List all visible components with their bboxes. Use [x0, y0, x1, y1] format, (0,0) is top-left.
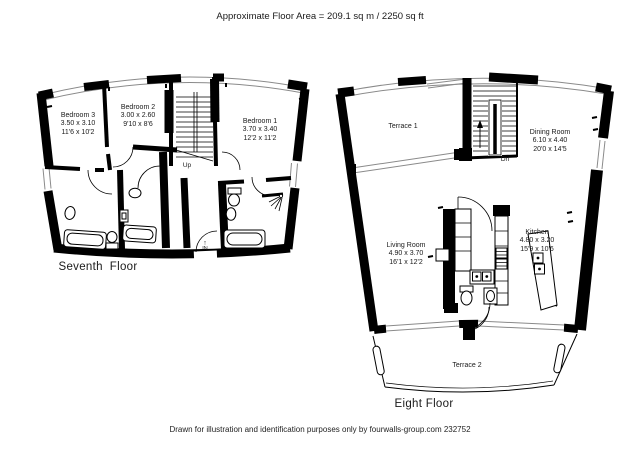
room-dims-imperial: 15'9 x 10'6 — [520, 246, 555, 254]
room-dims-metric: 6.10 x 4.40 — [530, 137, 570, 145]
floor-name-seventh: Seventh Floor — [59, 261, 138, 273]
room-dims-imperial: 9'10 x 8'6 — [121, 121, 156, 129]
entrance-text: IN — [202, 246, 208, 252]
room-name: Dining Room — [530, 129, 570, 137]
room-name: Bedroom 3 — [61, 112, 96, 120]
eighth-floor-plan — [338, 77, 612, 340]
room-label-dining-room: Dining Room 6.10 x 4.40 20'0 x 14'5 — [530, 129, 570, 154]
room-dims-metric: 4.80 x 3.20 — [520, 237, 555, 245]
floorplan-drawing — [0, 0, 640, 453]
stair-label-up: Up — [183, 162, 191, 169]
room-label-terrace-1: Terrace 1 — [388, 123, 417, 130]
page-title: Approximate Floor Area = 209.1 sq m / 22… — [216, 11, 423, 22]
floor-name-eighth: Eight Floor — [395, 398, 454, 410]
room-label-bedroom-3: Bedroom 3 3.50 x 3.10 11'6 x 10'2 — [61, 112, 96, 137]
room-dims-imperial: 20'0 x 14'5 — [530, 146, 570, 154]
entrance-label: ↑ IN — [202, 240, 208, 253]
room-dims-metric: 3.50 x 3.10 — [61, 120, 96, 128]
room-dims-imperial: 11'6 x 10'2 — [61, 129, 96, 137]
floorplan-page: Approximate Floor Area = 209.1 sq m / 22… — [0, 0, 640, 453]
stair-label-dn: Dn — [501, 156, 509, 163]
room-dims-imperial: 12'2 x 11'2 — [243, 135, 278, 143]
room-name: Living Room — [387, 242, 426, 250]
room-label-terrace-2: Terrace 2 — [452, 362, 481, 369]
room-label-bedroom-1: Bedroom 1 3.70 x 3.40 12'2 x 11'2 — [243, 118, 278, 143]
room-dims-metric: 4.90 x 3.70 — [387, 250, 426, 258]
room-dims-metric: 3.70 x 3.40 — [243, 126, 278, 134]
room-label-living-room: Living Room 4.90 x 3.70 16'1 x 12'2 — [387, 242, 426, 267]
room-dims-imperial: 16'1 x 12'2 — [387, 259, 426, 267]
room-dims-metric: 3.00 x 2.60 — [121, 112, 156, 120]
room-name: Kitchen — [520, 229, 555, 237]
room-label-bedroom-2: Bedroom 2 3.00 x 2.60 9'10 x 8'6 — [121, 104, 156, 129]
footer-note: Drawn for illustration and identificatio… — [169, 425, 470, 434]
room-name: Bedroom 2 — [121, 104, 156, 112]
room-name: Bedroom 1 — [243, 118, 278, 126]
room-label-kitchen: Kitchen 4.80 x 3.20 15'9 x 10'6 — [520, 229, 555, 254]
